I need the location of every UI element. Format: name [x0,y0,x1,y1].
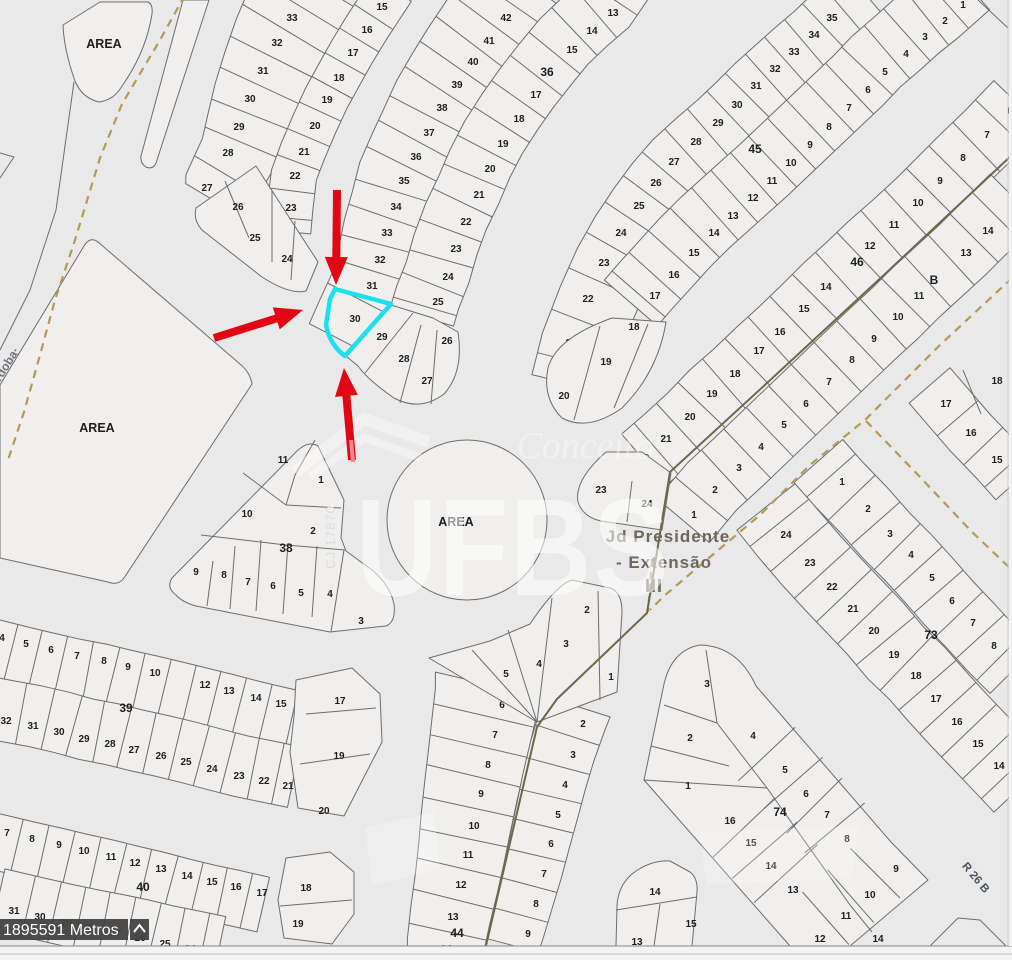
svg-text:9: 9 [871,334,877,345]
svg-text:28: 28 [222,148,234,159]
svg-text:30: 30 [731,100,743,111]
svg-text:33: 33 [788,47,800,58]
svg-text:9: 9 [893,864,899,875]
svg-text:25: 25 [633,201,645,212]
svg-text:22: 22 [582,294,594,305]
svg-text:45: 45 [748,142,762,156]
svg-text:32: 32 [769,64,781,75]
svg-text:5: 5 [781,420,787,431]
svg-text:10: 10 [78,846,90,857]
svg-text:6: 6 [803,789,809,800]
svg-text:13: 13 [607,8,619,19]
svg-text:42: 42 [500,13,512,24]
svg-text:14: 14 [820,282,832,293]
svg-text:5: 5 [929,573,935,584]
svg-text:18: 18 [991,376,1003,387]
svg-text:23: 23 [598,258,610,269]
svg-text:29: 29 [78,734,90,745]
svg-text:19: 19 [600,357,612,368]
svg-text:7: 7 [245,577,251,588]
svg-text:31: 31 [8,906,20,917]
svg-text:2: 2 [687,733,693,744]
svg-text:11: 11 [463,850,474,861]
svg-text:33: 33 [381,228,393,239]
svg-text:AREA: AREA [79,421,114,435]
svg-text:13: 13 [447,912,459,923]
svg-text:19: 19 [333,751,345,762]
svg-text:32: 32 [271,38,283,49]
svg-text:39: 39 [119,701,133,715]
svg-text:10: 10 [864,890,876,901]
svg-text:24: 24 [206,764,218,775]
svg-text:7: 7 [984,130,990,141]
svg-text:19: 19 [497,139,509,150]
svg-text:CJ 17870: CJ 17870 [323,505,338,569]
svg-text:17: 17 [753,346,765,357]
svg-text:34: 34 [808,30,820,41]
svg-text:12: 12 [455,880,467,891]
svg-text:11: 11 [278,455,289,466]
svg-text:6: 6 [949,596,955,607]
svg-text:8: 8 [960,153,966,164]
svg-text:27: 27 [128,745,140,756]
svg-text:1: 1 [318,475,324,486]
svg-text:24: 24 [442,272,454,283]
svg-text:8: 8 [826,122,832,133]
svg-text:9: 9 [56,840,62,851]
svg-text:26: 26 [232,202,244,213]
svg-text:3: 3 [736,463,742,474]
svg-text:21: 21 [473,190,485,201]
svg-text:16: 16 [230,882,242,893]
svg-text:24: 24 [281,254,293,265]
svg-text:6: 6 [548,839,554,850]
svg-text:5: 5 [882,67,888,78]
svg-text:38: 38 [436,103,448,114]
svg-text:18: 18 [910,671,922,682]
svg-text:12: 12 [864,241,876,252]
svg-text:10: 10 [912,198,924,209]
svg-text:4: 4 [908,550,914,561]
svg-text:8: 8 [485,760,491,771]
svg-text:4: 4 [327,589,333,600]
svg-text:10: 10 [785,158,797,169]
svg-text:5: 5 [23,639,29,650]
svg-text:9: 9 [478,789,484,800]
svg-text:4: 4 [0,633,5,644]
svg-text:12: 12 [747,193,759,204]
svg-text:38: 38 [279,541,293,555]
svg-text:B: B [930,273,939,287]
svg-text:8: 8 [221,570,227,581]
svg-text:10: 10 [241,509,253,520]
svg-text:22: 22 [826,582,838,593]
svg-text:15: 15 [991,455,1003,466]
svg-text:9: 9 [525,929,531,940]
svg-text:19: 19 [888,650,900,661]
svg-text:23: 23 [450,244,462,255]
svg-text:15: 15 [275,699,287,710]
svg-text:25: 25 [180,757,192,768]
svg-text:18: 18 [513,114,525,125]
svg-text:19: 19 [321,95,333,106]
svg-text:8: 8 [101,656,107,667]
svg-text:26: 26 [155,751,167,762]
svg-text:19: 19 [706,389,718,400]
svg-text:20: 20 [318,806,330,817]
svg-text:25: 25 [432,297,444,308]
svg-text:8: 8 [29,834,35,845]
svg-text:26: 26 [441,336,453,347]
svg-text:13: 13 [960,248,972,259]
svg-text:17: 17 [930,694,942,705]
svg-text:34: 34 [390,202,402,213]
svg-text:19: 19 [292,919,304,930]
svg-text:32: 32 [374,255,386,266]
svg-text:27: 27 [201,183,213,194]
svg-text:1895591 Metros: 1895591 Metros [3,922,119,939]
svg-text:3: 3 [887,529,893,540]
svg-text:36: 36 [410,152,422,163]
svg-text:22: 22 [289,171,301,182]
svg-text:2: 2 [865,504,871,515]
svg-text:29: 29 [233,122,245,133]
svg-text:30: 30 [349,314,361,325]
svg-text:10: 10 [468,821,480,832]
svg-text:27: 27 [668,157,680,168]
svg-text:3: 3 [570,750,576,761]
svg-text:8: 8 [849,355,855,366]
svg-text:17: 17 [347,48,359,59]
svg-text:5: 5 [555,810,561,821]
svg-text:3: 3 [704,679,710,690]
svg-text:31: 31 [366,281,378,292]
svg-text:16: 16 [668,270,680,281]
svg-text:16: 16 [774,327,786,338]
svg-text:9: 9 [125,662,131,673]
svg-text:31: 31 [27,721,39,732]
svg-text:14: 14 [982,226,994,237]
svg-text:24: 24 [615,228,627,239]
svg-text:7: 7 [4,828,10,839]
svg-text:16: 16 [724,816,736,827]
svg-text:31: 31 [750,81,762,92]
svg-text:9: 9 [193,567,199,578]
svg-text:11: 11 [841,911,852,922]
svg-text:7: 7 [824,810,830,821]
svg-text:23: 23 [804,558,816,569]
svg-text:9: 9 [937,176,943,187]
svg-text:7: 7 [541,869,547,880]
svg-text:15: 15 [972,739,984,750]
svg-text:7: 7 [492,730,498,741]
svg-text:6: 6 [48,645,54,656]
svg-text:12: 12 [129,858,141,869]
svg-text:23: 23 [233,771,245,782]
svg-text:13: 13 [223,686,235,697]
svg-text:18: 18 [300,883,312,894]
svg-text:7: 7 [970,618,976,629]
svg-text:23: 23 [285,203,297,214]
svg-text:46: 46 [850,255,864,269]
svg-text:21: 21 [282,781,294,792]
svg-text:25: 25 [249,233,261,244]
svg-text:AREA: AREA [86,37,121,51]
svg-text:41: 41 [483,36,495,47]
svg-text:15: 15 [688,248,700,259]
svg-text:11: 11 [889,220,900,231]
svg-text:14: 14 [250,693,262,704]
svg-text:31: 31 [257,66,269,77]
svg-text:32: 32 [0,716,12,727]
svg-text:15: 15 [798,304,810,315]
svg-text:13: 13 [787,885,799,896]
svg-text:14: 14 [872,934,884,945]
svg-text:2: 2 [580,719,586,730]
svg-text:4: 4 [750,731,756,742]
svg-text:4: 4 [758,442,764,453]
svg-text:7: 7 [74,651,80,662]
svg-text:11: 11 [767,176,778,187]
svg-text:11: 11 [914,291,925,302]
svg-text:28: 28 [398,354,410,365]
svg-text:1: 1 [839,477,845,488]
svg-text:21: 21 [847,604,859,615]
svg-text:29: 29 [376,332,388,343]
svg-text:39: 39 [451,80,463,91]
svg-text:16: 16 [361,25,373,36]
svg-text:14: 14 [586,26,598,37]
svg-text:15: 15 [206,877,218,888]
svg-text:8: 8 [991,641,997,652]
svg-text:35: 35 [826,13,838,24]
svg-text:27: 27 [421,376,433,387]
svg-text:20: 20 [309,121,321,132]
svg-text:44: 44 [450,926,464,940]
svg-text:26: 26 [650,178,662,189]
svg-text:UFBS: UFBS [356,470,671,624]
svg-text:10: 10 [149,668,161,679]
svg-text:1: 1 [960,0,966,11]
svg-text:14: 14 [708,228,720,239]
svg-text:30: 30 [53,727,65,738]
svg-text:73: 73 [924,628,938,642]
svg-text:12: 12 [199,680,211,691]
svg-text:15: 15 [376,2,388,13]
svg-text:9: 9 [807,140,813,151]
svg-text:2: 2 [712,485,718,496]
svg-text:4: 4 [562,780,568,791]
svg-text:16: 16 [965,428,977,439]
svg-text:12: 12 [814,934,826,945]
svg-text:18: 18 [729,369,741,380]
svg-text:Conceito: Conceito [516,425,653,467]
svg-text:5: 5 [298,588,304,599]
svg-text:17: 17 [256,888,268,899]
svg-text:15: 15 [566,45,578,56]
svg-text:1: 1 [685,781,691,792]
svg-text:17: 17 [334,696,346,707]
svg-text:3: 3 [563,639,569,650]
svg-text:1: 1 [608,672,614,683]
svg-text:20: 20 [684,412,696,423]
svg-text:22: 22 [258,776,270,787]
svg-text:11: 11 [106,852,117,863]
svg-text:37: 37 [423,128,435,139]
svg-text:35: 35 [398,176,410,187]
svg-text:18: 18 [628,322,640,333]
svg-text:28: 28 [104,739,116,750]
svg-text:40: 40 [136,880,150,894]
svg-text:28: 28 [690,137,702,148]
svg-text:13: 13 [155,864,167,875]
svg-text:33: 33 [286,13,298,24]
svg-text:30: 30 [244,94,256,105]
svg-text:40: 40 [467,57,479,68]
svg-text:6: 6 [270,581,276,592]
svg-text:17: 17 [649,291,661,302]
svg-text:16: 16 [951,717,963,728]
svg-text:29: 29 [712,118,724,129]
svg-text:5: 5 [503,669,509,680]
svg-text:4: 4 [903,49,909,60]
svg-text:4: 4 [536,659,542,670]
svg-text:18: 18 [333,73,345,84]
svg-text:1: 1 [691,510,697,521]
svg-text:2: 2 [942,16,948,27]
svg-text:74: 74 [773,805,787,819]
svg-text:5: 5 [782,765,788,776]
svg-text:3: 3 [922,32,928,43]
svg-text:14: 14 [181,871,193,882]
svg-text:21: 21 [298,147,310,158]
svg-text:7: 7 [826,377,832,388]
svg-text:17: 17 [940,399,952,410]
svg-text:7: 7 [846,103,852,114]
svg-text:8: 8 [533,899,539,910]
svg-text:6: 6 [865,85,871,96]
svg-text:10: 10 [892,312,904,323]
svg-text:36: 36 [540,65,554,79]
svg-text:17: 17 [530,90,542,101]
svg-text:15: 15 [685,919,697,930]
svg-text:20: 20 [868,626,880,637]
svg-text:21: 21 [660,434,672,445]
svg-text:2: 2 [310,526,316,537]
svg-text:14: 14 [993,761,1005,772]
svg-text:20: 20 [484,164,496,175]
svg-text:20: 20 [558,391,570,402]
svg-text:24: 24 [780,530,792,541]
svg-text:6: 6 [803,399,809,410]
svg-text:14: 14 [649,887,661,898]
svg-text:22: 22 [460,217,472,228]
svg-text:13: 13 [727,211,739,222]
